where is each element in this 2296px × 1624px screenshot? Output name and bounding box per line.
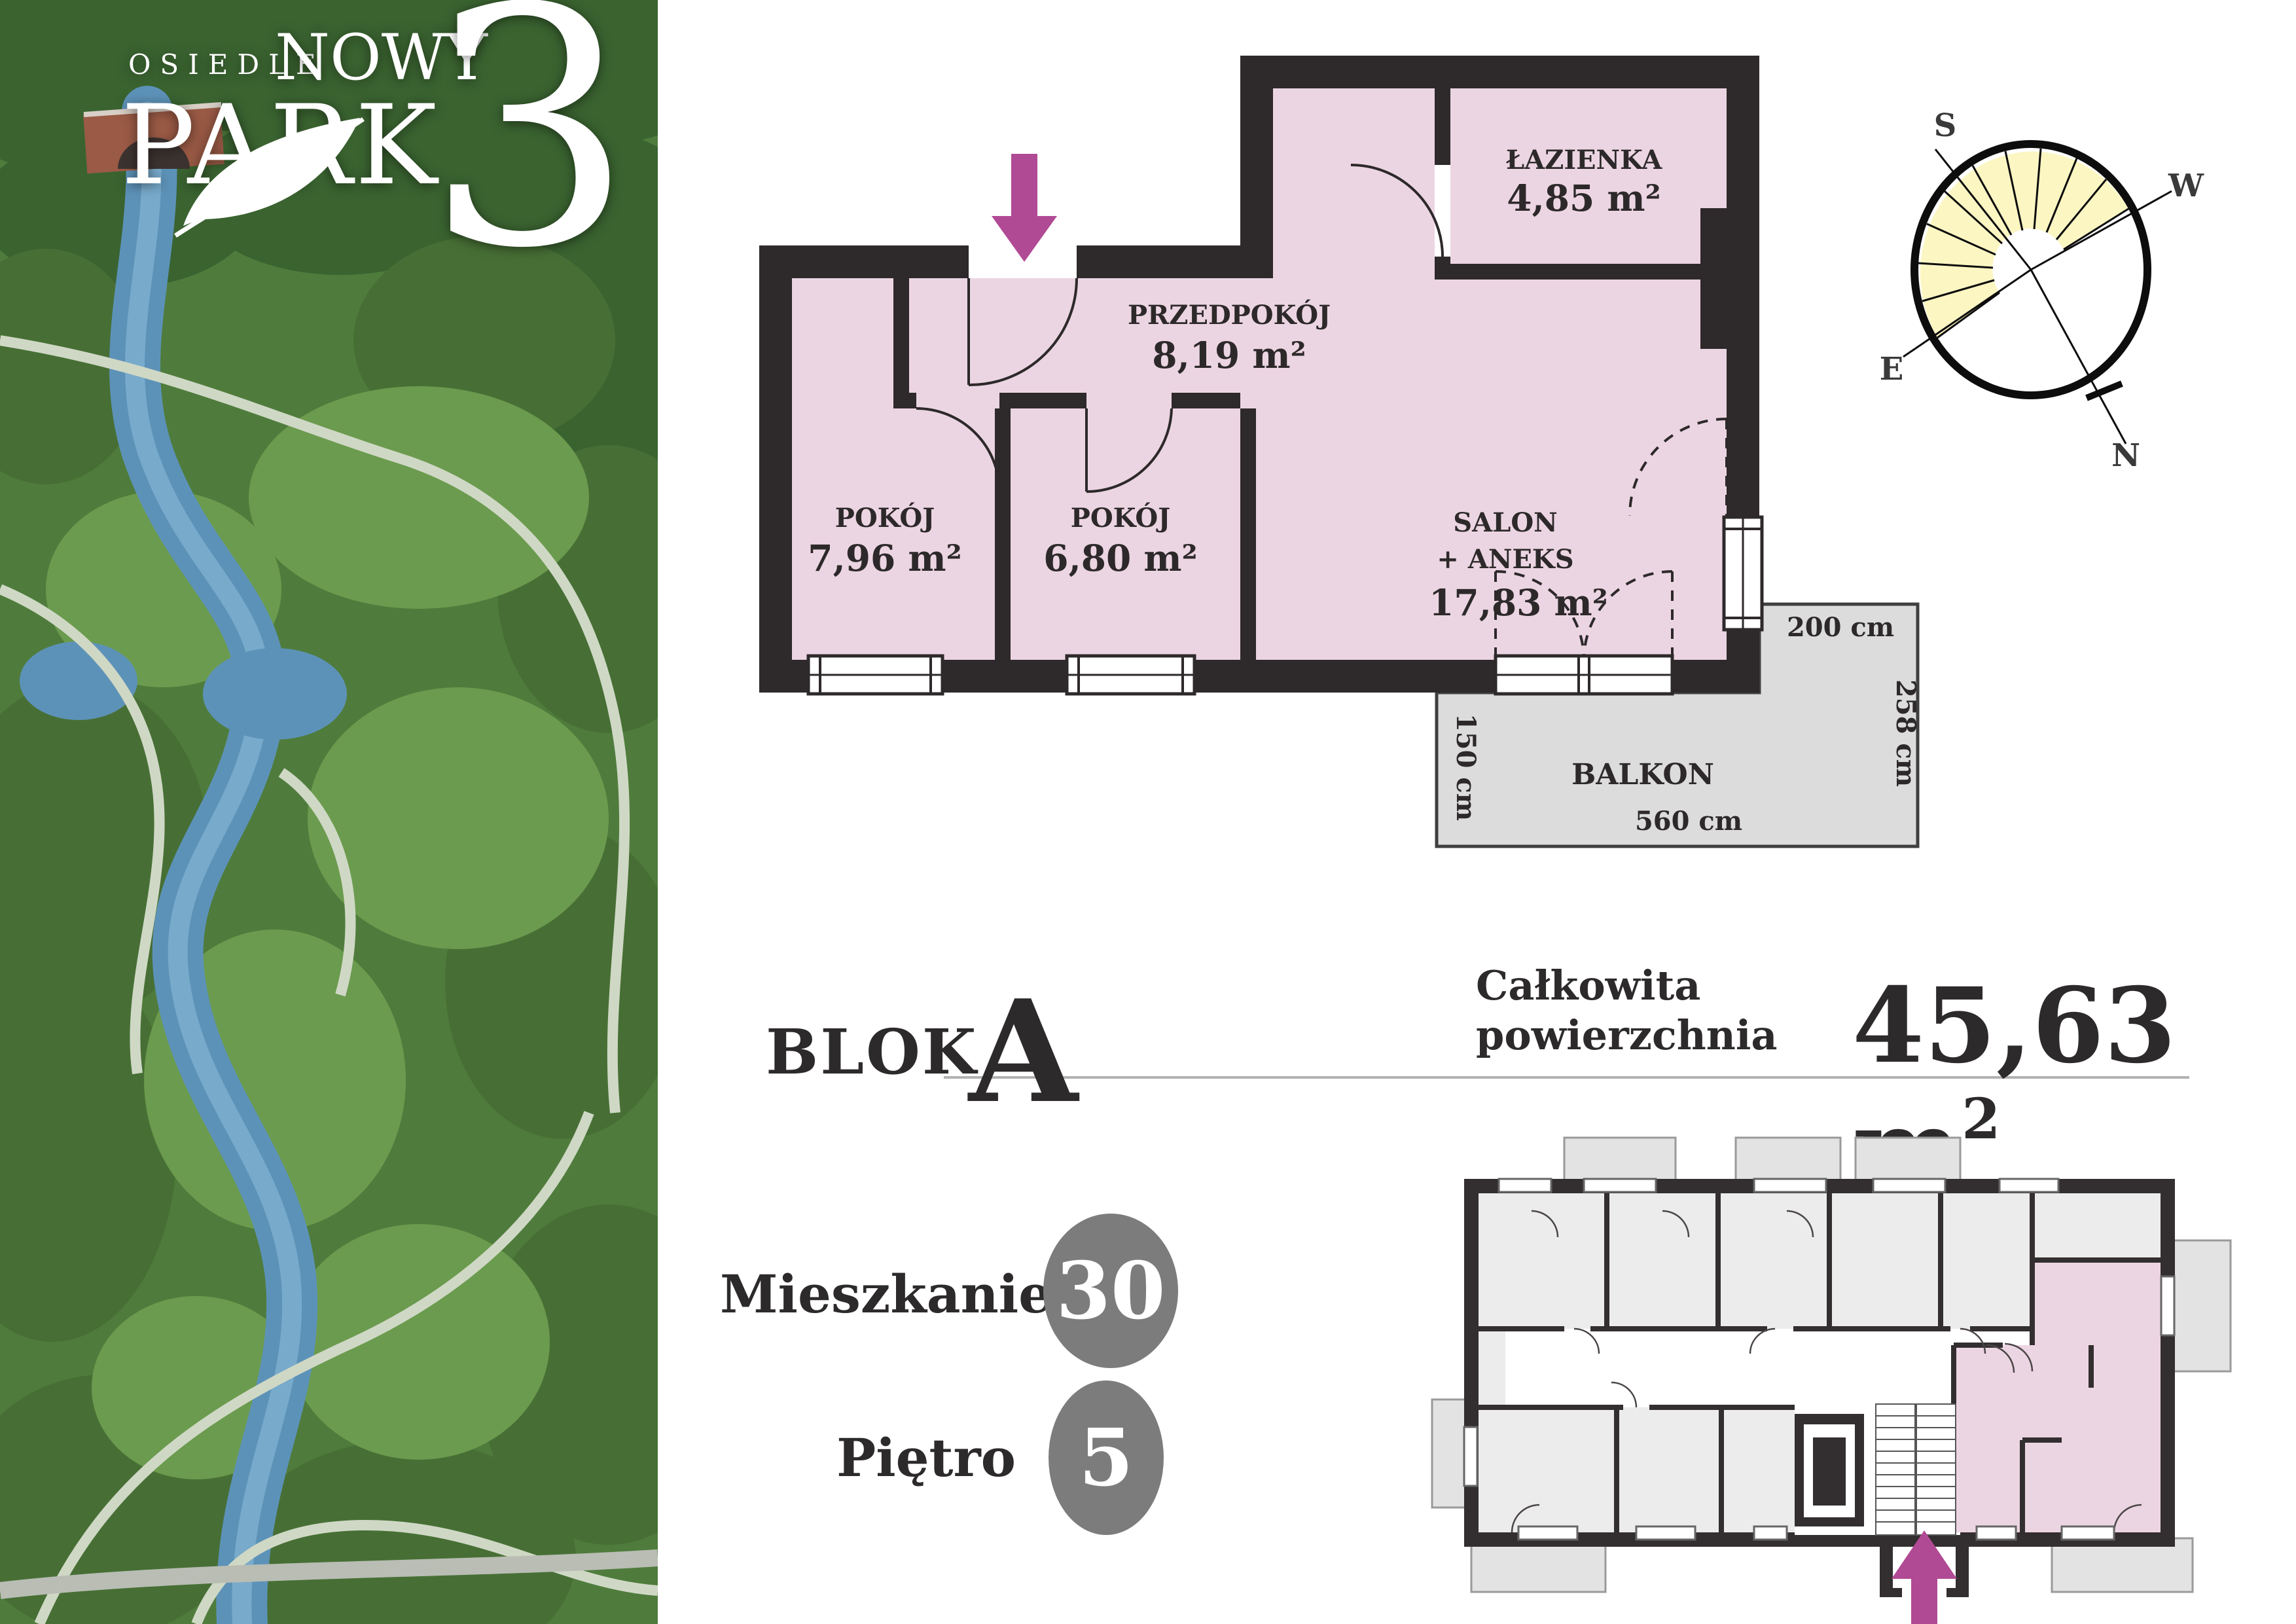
label-salon-aneks: + ANEKS (1437, 544, 1573, 575)
area-lazienka: 4,85 m² (1507, 177, 1660, 219)
floor-label: Piętro (720, 1427, 1016, 1489)
label-przedpokoj: PRZEDPOKÓJ (1128, 300, 1331, 331)
area-pokoj2: 6,80 m² (1043, 537, 1197, 579)
apartment-number: 30 (1056, 1245, 1166, 1337)
label-lazienka: ŁAZIENKA (1506, 145, 1663, 175)
area-salon: 17,83 m² (1429, 581, 1608, 624)
apartment-floor-plan: ŁAZIENKA 4,85 m² PRZEDPOKÓJ 8,19 m² POKÓ… (720, 33, 1964, 877)
logo-three: 3 (425, 0, 634, 276)
area-przedpokoj: 8,19 m² (1152, 334, 1306, 376)
window-french (1496, 656, 1672, 694)
label-salon: SALON (1453, 507, 1557, 538)
overview-elevator (1795, 1414, 1864, 1526)
logo-leaf-icon (164, 98, 386, 242)
window-salon-right (1724, 517, 1762, 630)
window-room1 (808, 656, 942, 694)
compass-e: E (1880, 351, 1904, 388)
compass: S W E N (1872, 79, 2212, 471)
compass-n: N (2111, 437, 2140, 471)
window-room2 (1067, 656, 1194, 694)
block-label: BLOK (766, 1016, 978, 1089)
compass-w: W (2168, 168, 2204, 204)
balcony-dim-right: 258 cm (1890, 679, 1921, 787)
balcony-dim-bottom: 560 cm (1635, 806, 1742, 837)
block-value: A (969, 992, 1078, 1113)
apartment-label: Mieszkanie (720, 1263, 1016, 1325)
total-area-label-line1: Całkowita (1476, 961, 1778, 1011)
photo-pond-2 (203, 648, 347, 740)
floor-number: 5 (1079, 1412, 1134, 1504)
total-area-label: Całkowita powierzchnia (1476, 961, 1778, 1060)
apartment-number-badge: 30 (1043, 1214, 1178, 1368)
balcony-dim-top: 200 cm (1787, 612, 1894, 643)
floor-number-badge: 5 (1049, 1380, 1164, 1535)
compass-north-tick (2087, 384, 2122, 398)
label-pokoj2: POKÓJ (1071, 503, 1170, 533)
area-pokoj1: 7,96 m² (808, 537, 961, 579)
label-pokoj1: POKÓJ (835, 503, 935, 533)
brochure-page: OSIEDLE NOWY PARK 3 (0, 0, 2296, 1624)
overview-staircase (1876, 1404, 1956, 1535)
total-area-label-line2: powierzchnia (1476, 1011, 1778, 1060)
compass-s: S (1934, 107, 1957, 144)
balcony-dim-left: 150 cm (1450, 713, 1481, 821)
building-floor-overview (1427, 1131, 2296, 1624)
label-balkon: BALKON (1571, 758, 1714, 791)
